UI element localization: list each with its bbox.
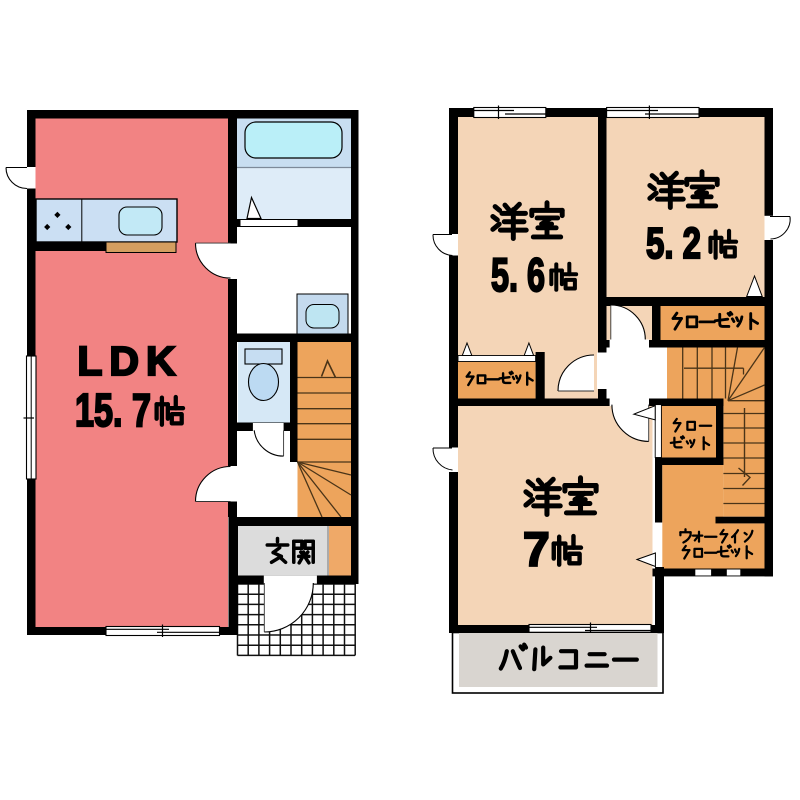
svg-text:7: 7 xyxy=(523,524,550,577)
svg-text:5. 6: 5. 6 xyxy=(491,248,545,301)
svg-text:5. 2: 5. 2 xyxy=(646,219,701,268)
svg-text:15. 7: 15. 7 xyxy=(75,384,151,436)
svg-text:LDK: LDK xyxy=(77,338,182,384)
